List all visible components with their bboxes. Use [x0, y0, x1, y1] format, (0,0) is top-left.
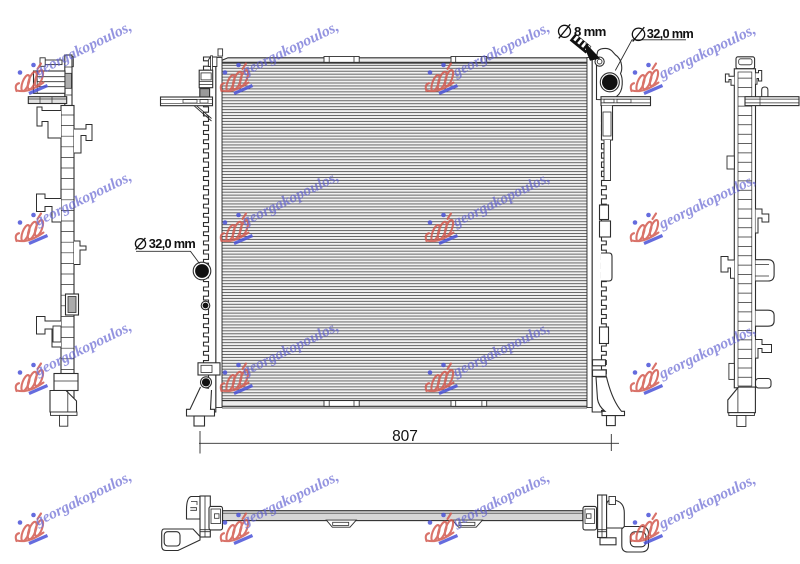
- svg-text:8 mm: 8 mm: [574, 24, 606, 39]
- svg-text:32,0 mm: 32,0 mm: [149, 236, 196, 251]
- svg-text:32,0 mm: 32,0 mm: [647, 26, 694, 41]
- svg-text:807: 807: [392, 428, 418, 445]
